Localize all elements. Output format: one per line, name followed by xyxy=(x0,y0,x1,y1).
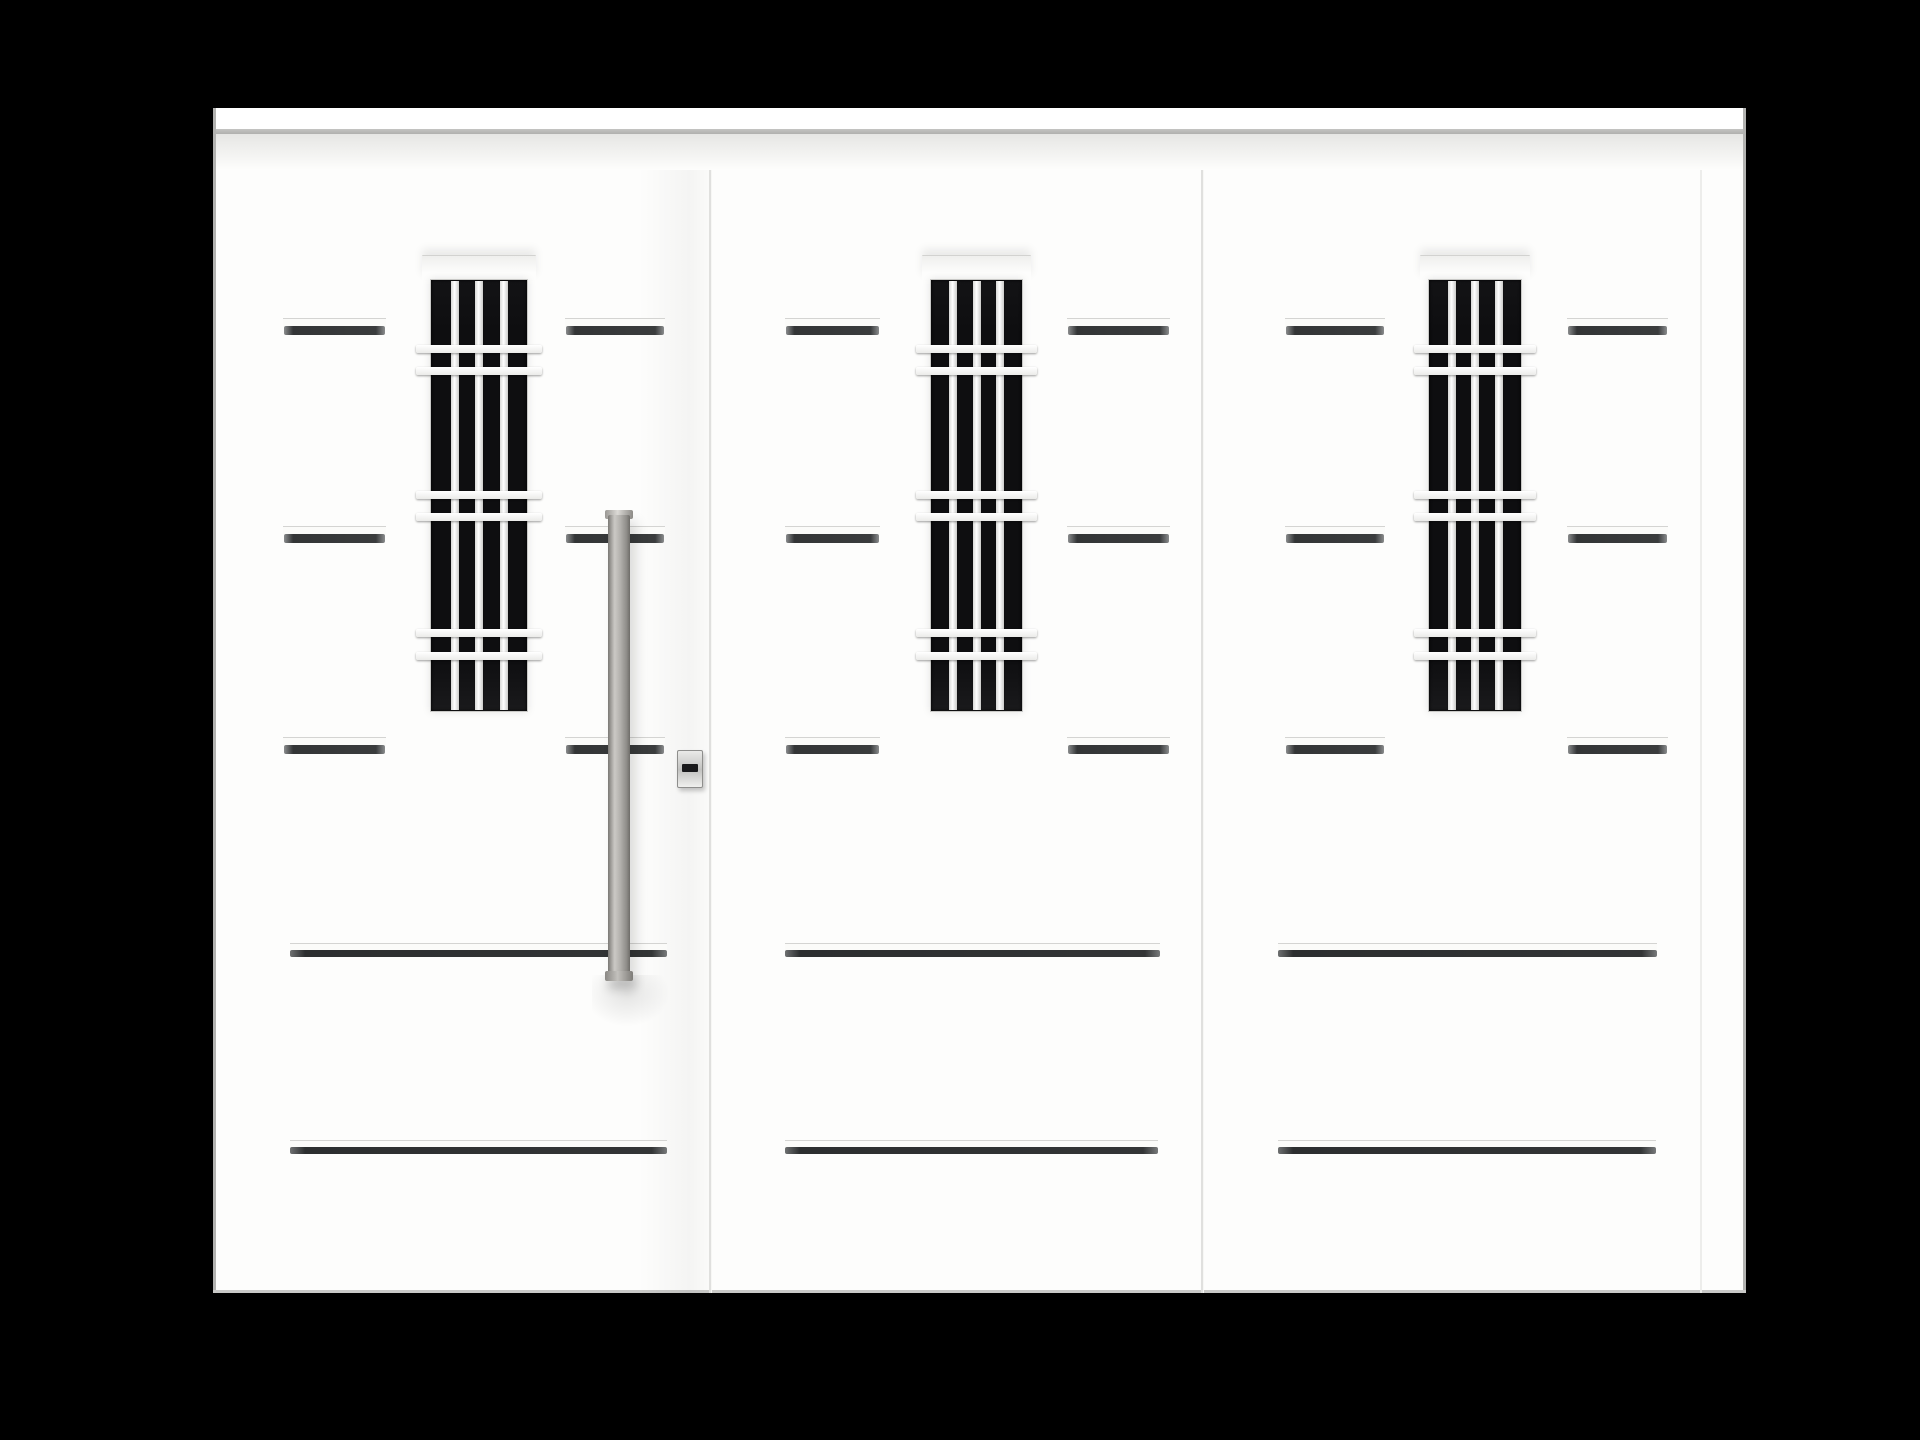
window-grille-bar xyxy=(416,345,542,353)
window-grille-bar xyxy=(416,513,542,521)
door-leaf-edge-shading xyxy=(638,170,709,1293)
window-grille-bar xyxy=(916,513,1037,521)
pull-handle-bar xyxy=(608,515,630,975)
accent-trim-bar xyxy=(284,745,385,754)
accent-trim-bar xyxy=(1568,326,1667,335)
window-grille-bar xyxy=(916,491,1037,499)
cornice-molding-top xyxy=(213,108,1746,129)
frame-edge-left xyxy=(213,108,216,1293)
pull-handle-bottom-cap xyxy=(605,971,633,981)
window-grille-bar xyxy=(416,367,542,375)
pull-handle-shadow xyxy=(592,975,670,1027)
accent-trim-bar xyxy=(1286,534,1384,543)
frame-stile-line xyxy=(1700,170,1702,1293)
accent-trim-bar xyxy=(1068,326,1169,335)
window-grille-bar xyxy=(1414,491,1536,499)
accent-trim-bar xyxy=(1068,745,1169,754)
accent-trim-bar xyxy=(1286,745,1384,754)
accent-trim-bar xyxy=(284,326,385,335)
window-grille-bar xyxy=(1414,652,1536,660)
window-grille-bar xyxy=(1414,513,1536,521)
window-grille-bar xyxy=(416,491,542,499)
accent-trim-bar xyxy=(1568,745,1667,754)
frame-edge-bottom xyxy=(213,1290,1746,1293)
bottom-groove-line xyxy=(1278,1147,1656,1154)
window-lintel xyxy=(1420,255,1530,280)
bottom-groove-line xyxy=(1278,950,1657,957)
accent-trim-bar xyxy=(1568,534,1667,543)
window-grille-bar xyxy=(416,629,542,637)
window-lintel xyxy=(922,255,1031,280)
bottom-groove-line xyxy=(290,1147,667,1154)
window-grille-bar xyxy=(916,652,1037,660)
accent-trim-bar xyxy=(566,326,664,335)
window-grille-bar xyxy=(1414,345,1536,353)
accent-trim-bar xyxy=(786,326,879,335)
accent-trim-bar xyxy=(786,534,879,543)
window-grille-bar xyxy=(1414,629,1536,637)
lock-keyhole-slot xyxy=(682,764,698,772)
accent-trim-bar xyxy=(1286,326,1384,335)
window-lintel xyxy=(422,255,536,280)
accent-trim-bar xyxy=(284,534,385,543)
panel-seam xyxy=(709,170,711,1293)
cornice-molding-shade xyxy=(213,134,1746,170)
bottom-groove-line xyxy=(785,950,1160,957)
accent-trim-bar xyxy=(1068,534,1169,543)
window-grille-bar xyxy=(916,345,1037,353)
frame-edge-right xyxy=(1743,108,1746,1293)
product-photo-door-set xyxy=(0,0,1920,1440)
window-grille-bar xyxy=(916,367,1037,375)
panel-seam xyxy=(1201,170,1203,1293)
window-grille-bar xyxy=(416,652,542,660)
window-grille-bar xyxy=(916,629,1037,637)
accent-trim-bar xyxy=(786,745,879,754)
bottom-groove-line xyxy=(785,1147,1158,1154)
window-grille-bar xyxy=(1414,367,1536,375)
